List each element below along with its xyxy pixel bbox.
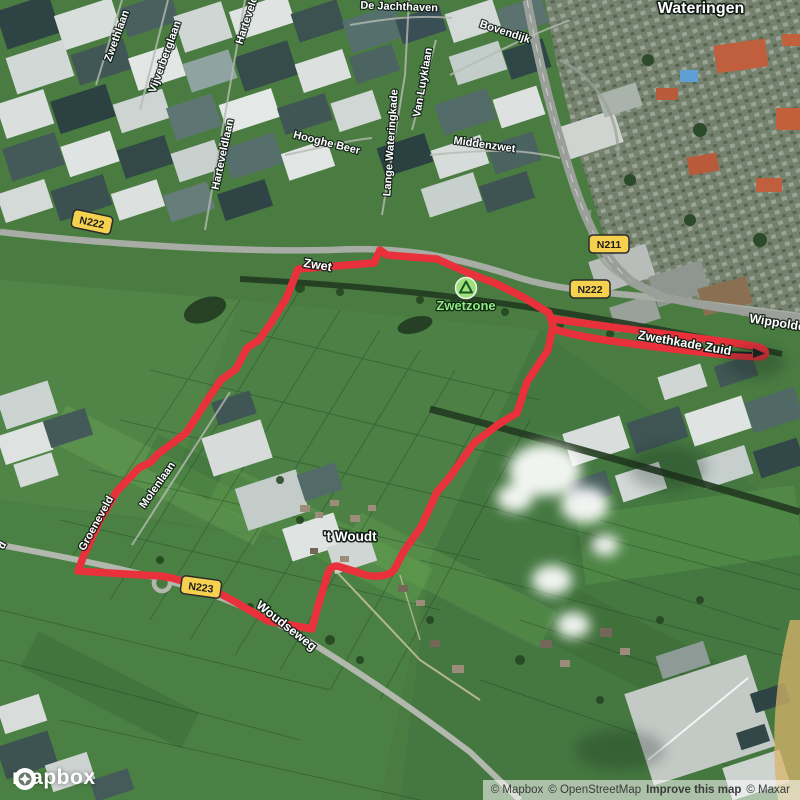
park-icon[interactable] <box>456 278 477 299</box>
poi-label-zwetzone: Zwetzone <box>436 298 495 313</box>
shield-label: N211 <box>597 239 622 251</box>
attribution-bar: © Mapbox © OpenStreetMap Improve this ma… <box>483 780 800 800</box>
place-label-t-woudt: 't Woudt <box>323 529 377 544</box>
shield-label: N222 <box>577 284 602 296</box>
map-canvas[interactable]: N222 N211 N222 N223 Zwethlaan Vijverberg… <box>0 0 800 800</box>
map-viewport[interactable]: N222 N211 N222 N223 Zwethlaan Vijverberg… <box>0 0 800 800</box>
mapbox-logo[interactable]: mapbox <box>12 766 96 790</box>
attribution-maxar-link[interactable]: © Maxar <box>746 784 790 796</box>
mapbox-logo-icon <box>12 766 38 792</box>
attribution-mapbox-link[interactable]: © Mapbox <box>491 784 544 796</box>
place-label-wateringen: Wateringen <box>658 0 745 17</box>
shield-n211: N211 <box>589 235 629 253</box>
improve-this-map-link[interactable]: Improve this map <box>646 784 741 796</box>
attribution-osm-link[interactable]: © OpenStreetMap <box>548 784 641 796</box>
shield-n222-east: N222 <box>570 280 610 298</box>
